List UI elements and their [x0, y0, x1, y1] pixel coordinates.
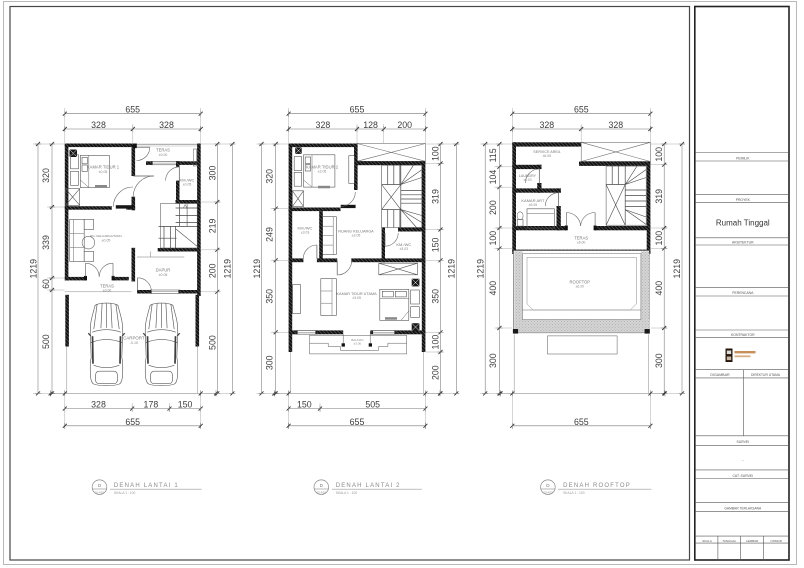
- svg-text:300: 300: [207, 166, 217, 181]
- svg-text:100: 100: [431, 335, 441, 350]
- svg-text:655: 655: [350, 104, 365, 114]
- svg-text:655: 655: [574, 417, 589, 427]
- svg-text:150: 150: [297, 400, 312, 410]
- svg-text:±6.03: ±6.03: [524, 178, 532, 182]
- svg-text:655: 655: [350, 417, 365, 427]
- svg-text:±3.05: ±3.05: [352, 296, 361, 300]
- svg-text:319: 319: [431, 189, 441, 204]
- svg-text:1219: 1219: [672, 259, 682, 279]
- svg-text:100: 100: [654, 231, 664, 246]
- svg-text:655: 655: [125, 104, 140, 114]
- svg-text:200: 200: [397, 120, 412, 130]
- svg-text:±6.00: ±6.00: [577, 241, 586, 245]
- svg-text:±6.05: ±6.05: [543, 154, 552, 158]
- svg-text:328: 328: [91, 400, 106, 410]
- svg-text:03-A03: 03-A03: [543, 490, 553, 494]
- svg-text:300: 300: [654, 353, 664, 368]
- svg-text:DIGAMBAR: DIGAMBAR: [710, 373, 730, 377]
- svg-text:D: D: [98, 483, 102, 488]
- svg-text:±3.00: ±3.00: [354, 342, 362, 346]
- svg-text:200: 200: [207, 263, 217, 278]
- svg-text:200: 200: [431, 365, 441, 380]
- svg-text:±0.05: ±0.05: [159, 273, 168, 277]
- svg-text:±3.05: ±3.05: [318, 170, 327, 174]
- svg-text:104: 104: [488, 170, 498, 185]
- svg-text:DENAH LANTAI 1: DENAH LANTAI 1: [114, 483, 179, 489]
- svg-text:±3.03: ±3.03: [301, 231, 310, 235]
- svg-text:DAPUR: DAPUR: [156, 268, 171, 273]
- svg-text:Rumah Tinggal: Rumah Tinggal: [716, 219, 770, 228]
- svg-text:300: 300: [265, 355, 275, 370]
- svg-text:400: 400: [488, 281, 498, 296]
- svg-text:100: 100: [431, 146, 441, 161]
- svg-text:1219: 1219: [28, 259, 38, 279]
- svg-text:KAMAR TIDUR 1: KAMAR TIDUR 1: [87, 165, 120, 170]
- svg-text:1219: 1219: [446, 259, 456, 279]
- svg-text:128: 128: [363, 120, 378, 130]
- svg-text:PERENCANA: PERENCANA: [732, 291, 754, 295]
- svg-text:±0.05: ±0.05: [102, 239, 111, 243]
- svg-text:350: 350: [431, 289, 441, 304]
- svg-text:ARSITEKTUR: ARSITEKTUR: [732, 241, 754, 245]
- svg-text:400: 400: [654, 281, 664, 296]
- svg-text:500: 500: [41, 334, 51, 349]
- svg-text:D: D: [546, 483, 550, 488]
- svg-text:SKALA 1 : 100: SKALA 1 : 100: [336, 491, 358, 495]
- svg-text:±6.20: ±6.20: [576, 285, 585, 289]
- svg-text:328: 328: [539, 120, 554, 130]
- svg-text:±3.03: ±3.03: [400, 247, 409, 251]
- svg-text:GAMBAR TERLAKSANA: GAMBAR TERLAKSANA: [724, 507, 762, 511]
- svg-text:339: 339: [41, 235, 51, 250]
- svg-text:TANGGAL: TANGGAL: [722, 539, 736, 543]
- svg-text:PROYEK: PROYEK: [736, 198, 751, 202]
- svg-text:178: 178: [144, 400, 159, 410]
- svg-text:320: 320: [265, 169, 275, 184]
- svg-text:NOMOR: NOMOR: [771, 539, 783, 543]
- svg-text:±0.00: ±0.00: [159, 153, 168, 157]
- svg-text:115: 115: [488, 148, 498, 162]
- svg-text:655: 655: [574, 104, 589, 114]
- svg-text:±6.05: ±6.05: [529, 203, 538, 207]
- svg-text:02-A02: 02-A02: [317, 490, 327, 494]
- svg-text:328: 328: [316, 120, 331, 130]
- svg-text:1219: 1219: [252, 259, 262, 279]
- svg-text:±0.05: ±0.05: [183, 183, 192, 187]
- svg-text:KAMAR TIDUR 2: KAMAR TIDUR 2: [306, 164, 339, 169]
- svg-text:500: 500: [207, 335, 217, 350]
- svg-text:±0.05: ±0.05: [99, 170, 108, 174]
- svg-text:±3.05: ±3.05: [352, 234, 361, 238]
- svg-text:328: 328: [159, 120, 174, 130]
- svg-text:655: 655: [125, 417, 140, 427]
- svg-text:350: 350: [265, 289, 275, 304]
- svg-text:320: 320: [41, 168, 51, 183]
- svg-text:-0.15: -0.15: [130, 341, 138, 345]
- svg-text:200: 200: [488, 200, 498, 215]
- svg-text:CAT. SURVEI: CAT. SURVEI: [732, 474, 753, 478]
- svg-text:100: 100: [488, 231, 498, 246]
- svg-text:328: 328: [91, 120, 106, 130]
- svg-text:D: D: [320, 483, 324, 488]
- svg-text:219: 219: [207, 218, 217, 233]
- svg-text:LEMBAR: LEMBAR: [746, 539, 759, 543]
- svg-text:-: -: [742, 458, 744, 463]
- svg-text:KONTRAKTOR: KONTRAKTOR: [731, 333, 755, 337]
- svg-text:SKALA: SKALA: [702, 539, 712, 543]
- svg-text:300: 300: [488, 353, 498, 368]
- svg-text:RG. KELUARGA/TAMU: RG. KELUARGA/TAMU: [90, 234, 122, 238]
- svg-text:01-A01: 01-A01: [95, 490, 105, 494]
- svg-text:SURVEI: SURVEI: [737, 440, 750, 444]
- svg-text:PEMILIK: PEMILIK: [736, 156, 750, 160]
- svg-text:328: 328: [608, 120, 623, 130]
- svg-text:150: 150: [431, 237, 441, 252]
- svg-text:SKALA 1 : 100: SKALA 1 : 100: [563, 491, 585, 495]
- svg-text:DENAH LANTAI 2: DENAH LANTAI 2: [336, 483, 401, 489]
- svg-text:DENAH ROOFTOP: DENAH ROOFTOP: [563, 483, 631, 489]
- svg-text:100: 100: [654, 147, 664, 162]
- svg-text:150: 150: [178, 400, 193, 410]
- svg-text:1219: 1219: [476, 259, 486, 279]
- svg-text:DIREKTUR UTAMA: DIREKTUR UTAMA: [751, 373, 781, 377]
- svg-text:ROOFTOP: ROOFTOP: [569, 279, 590, 284]
- svg-text:60: 60: [41, 279, 51, 289]
- svg-text:249: 249: [265, 227, 275, 242]
- svg-text:1219: 1219: [222, 259, 232, 279]
- svg-text:505: 505: [365, 400, 380, 410]
- svg-text:SKALA 1 : 100: SKALA 1 : 100: [114, 491, 136, 495]
- svg-text:319: 319: [654, 189, 664, 204]
